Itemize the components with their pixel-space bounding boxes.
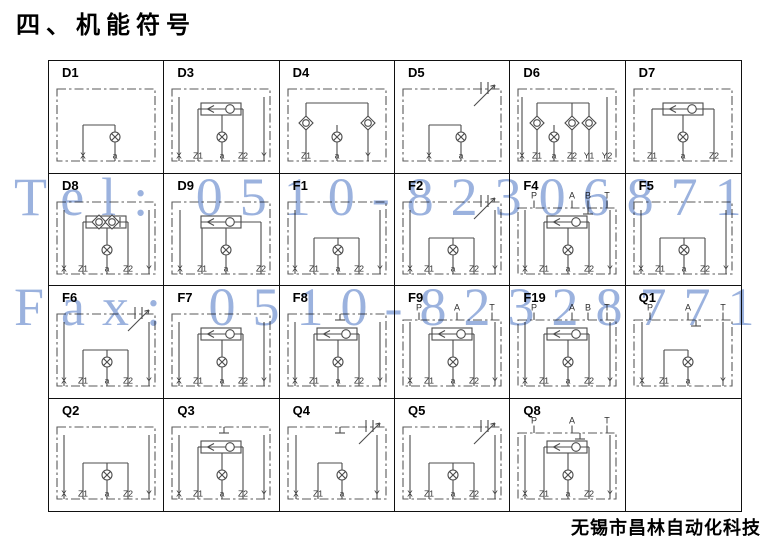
hydraulic-symbol-diagram: Xa bbox=[395, 76, 510, 172]
orifice-icon bbox=[448, 357, 458, 367]
hydraulic-symbol-diagram: Xa bbox=[49, 76, 164, 172]
symbol-cell-D6: D6XZ1aZ2Y1Y2 bbox=[510, 61, 625, 174]
symbol-cell-Q4: Q4XZ1aY bbox=[280, 399, 395, 512]
svg-text:T: T bbox=[489, 303, 495, 313]
check-valve-icon bbox=[565, 116, 579, 130]
shuttle-valve-icon bbox=[432, 328, 472, 340]
svg-text:A: A bbox=[569, 303, 575, 313]
adjustable-throttle-icon bbox=[474, 82, 495, 106]
orifice-icon bbox=[333, 245, 343, 255]
empty-cell bbox=[626, 399, 741, 512]
svg-text:P: P bbox=[416, 303, 422, 313]
orifice-icon bbox=[332, 132, 342, 142]
svg-text:P: P bbox=[531, 415, 537, 425]
shuttle-valve-icon bbox=[547, 216, 587, 228]
svg-text:T: T bbox=[605, 303, 611, 313]
svg-text:A: A bbox=[454, 303, 460, 313]
svg-text:A: A bbox=[685, 303, 691, 313]
symbol-cell-F6: F6XZ1aZ2Y bbox=[49, 286, 164, 399]
shuttle-valve-icon bbox=[201, 103, 241, 115]
symbol-cell-D5: D5Xa bbox=[395, 61, 510, 174]
orifice-icon bbox=[563, 357, 573, 367]
hydraulic-symbol-diagram: XZ1aYPAT bbox=[626, 301, 741, 397]
orifice-icon bbox=[563, 470, 573, 480]
orifice-icon bbox=[678, 132, 688, 142]
shuttle-valve-icon bbox=[547, 441, 587, 453]
orifice-icon bbox=[448, 470, 458, 480]
symbol-cell-Q2: Q2XZ1aZ2Y bbox=[49, 399, 164, 512]
hydraulic-symbol-diagram: XZ1aZ2 bbox=[164, 189, 279, 285]
symbol-cell-D4: D4Z1aY bbox=[280, 61, 395, 174]
check-valve-icon bbox=[530, 116, 544, 130]
svg-text:B: B bbox=[585, 190, 591, 200]
symbol-cell-F1: F1XZ1aZ2Y bbox=[280, 174, 395, 287]
symbol-cell-F19: F19XZ1aZ2YPABT bbox=[510, 286, 625, 399]
symbol-cell-F8: F8XZ1aZ2Y bbox=[280, 286, 395, 399]
symbol-cell-Q1: Q1XZ1aYPAT bbox=[626, 286, 741, 399]
symbol-cell-D7: D7Z1aZ2 bbox=[626, 61, 741, 174]
hydraulic-symbol-diagram: XZ1aZ2Y bbox=[49, 414, 164, 510]
symbol-cell-F2: F2XZ1aZ2Y bbox=[395, 174, 510, 287]
orifice-icon bbox=[217, 357, 227, 367]
symbol-cell-F7: F7XZ1aZ2Y bbox=[164, 286, 279, 399]
tank-vent-icon bbox=[583, 208, 593, 214]
svg-text:B: B bbox=[585, 303, 591, 313]
hydraulic-symbol-diagram: XZ1aZ2Y1Y2 bbox=[510, 76, 625, 172]
shuttle-valve-icon bbox=[317, 328, 357, 340]
orifice-icon bbox=[102, 470, 112, 480]
svg-text:A: A bbox=[569, 415, 575, 425]
hydraulic-symbol-diagram: XZ1aZ2Y bbox=[280, 301, 395, 397]
orifice-icon bbox=[563, 245, 573, 255]
orifice-icon bbox=[337, 470, 347, 480]
svg-text:P: P bbox=[531, 190, 537, 200]
orifice-icon bbox=[683, 357, 693, 367]
shuttle-valve-icon bbox=[663, 103, 703, 115]
check-valve-icon bbox=[361, 116, 375, 130]
symbol-cell-Q3: Q3XZ1aZ2Y bbox=[164, 399, 279, 512]
svg-text:T: T bbox=[720, 303, 726, 313]
hydraulic-symbol-diagram: XZ1aZ2YPABT bbox=[510, 301, 625, 397]
company-name: 无锡市昌林自动化科技 bbox=[571, 514, 761, 540]
symbol-cell-Q8: Q8XZ1aZ2YPAT bbox=[510, 399, 625, 512]
shuttle-valve-icon bbox=[201, 216, 241, 228]
hydraulic-symbol-diagram: Z1aZ2 bbox=[626, 76, 741, 172]
hydraulic-symbol-diagram: XZ1aZ2Y bbox=[395, 189, 510, 285]
hydraulic-symbol-diagram: XZ1aZ2Y bbox=[164, 301, 279, 397]
shuttle-valve-icon bbox=[201, 328, 241, 340]
hydraulic-symbol-diagram: XZ1aZ2YPABT bbox=[510, 189, 625, 285]
orifice-icon bbox=[679, 245, 689, 255]
symbol-cell-F5: F5XZ1aZ2Y bbox=[626, 174, 741, 287]
tank-vent-icon bbox=[335, 427, 345, 433]
svg-text:A: A bbox=[569, 190, 575, 200]
hydraulic-symbol-diagram: XZ1aZ2Y bbox=[49, 189, 164, 285]
svg-text:P: P bbox=[531, 303, 537, 313]
hydraulic-symbol-diagram: XZ1aZ2Y bbox=[164, 76, 279, 172]
hydraulic-symbol-diagram: XZ1aZ2Y bbox=[49, 301, 164, 397]
orifice-icon bbox=[333, 357, 343, 367]
function-symbols-table: D1XaD3XZ1aZ2YD4Z1aYD5XaD6XZ1aZ2Y1Y2D7Z1a… bbox=[48, 60, 742, 512]
hydraulic-symbol-diagram: XZ1aZ2Y bbox=[626, 189, 741, 285]
hydraulic-symbol-diagram: XZ1aZ2YPAT bbox=[395, 301, 510, 397]
orifice-icon bbox=[102, 357, 112, 367]
shuttle-valve-icon bbox=[547, 328, 587, 340]
hydraulic-symbol-diagram: XZ1aZ2Y bbox=[164, 414, 279, 510]
tank-vent-icon bbox=[219, 427, 229, 433]
double-check-valve-icon bbox=[86, 215, 126, 229]
hydraulic-symbol-diagram: XZ1aY bbox=[280, 414, 395, 510]
hydraulic-symbol-diagram: Z1aY bbox=[280, 76, 395, 172]
symbol-cell-F4: F4XZ1aZ2YPABT bbox=[510, 174, 625, 287]
orifice-icon bbox=[221, 245, 231, 255]
orifice-icon bbox=[448, 245, 458, 255]
adjustable-throttle-icon bbox=[474, 195, 495, 219]
symbol-cell-D3: D3XZ1aZ2Y bbox=[164, 61, 279, 174]
orifice-icon bbox=[217, 470, 227, 480]
symbol-cell-Q5: Q5XZ1aZ2Y bbox=[395, 399, 510, 512]
adjustable-throttle-icon bbox=[474, 420, 495, 444]
svg-text:P: P bbox=[647, 303, 653, 313]
orifice-icon bbox=[217, 132, 227, 142]
symbol-cell-D8: D8XZ1aZ2Y bbox=[49, 174, 164, 287]
orifice-icon bbox=[549, 132, 559, 142]
check-valve-icon bbox=[582, 116, 596, 130]
tank-vent-icon bbox=[575, 433, 585, 439]
svg-text:T: T bbox=[605, 415, 611, 425]
page-title: 四、机能符号 bbox=[16, 5, 196, 40]
symbol-cell-D9: D9XZ1aZ2 bbox=[164, 174, 279, 287]
symbol-cell-F9: F9XZ1aZ2YPAT bbox=[395, 286, 510, 399]
check-valve-icon bbox=[299, 116, 313, 130]
adjustable-throttle-icon bbox=[128, 307, 149, 331]
hydraulic-symbol-diagram: XZ1aZ2Y bbox=[395, 414, 510, 510]
tank-vent-icon bbox=[335, 314, 345, 320]
hydraulic-symbol-diagram: XZ1aZ2Y bbox=[280, 189, 395, 285]
shuttle-valve-icon bbox=[201, 441, 241, 453]
orifice-icon bbox=[110, 132, 120, 142]
symbol-cell-D1: D1Xa bbox=[49, 61, 164, 174]
orifice-icon bbox=[456, 132, 466, 142]
tank-vent-icon bbox=[691, 320, 701, 326]
svg-text:T: T bbox=[605, 190, 611, 200]
hydraulic-symbol-diagram: XZ1aZ2YPAT bbox=[510, 414, 625, 510]
orifice-icon bbox=[102, 245, 112, 255]
